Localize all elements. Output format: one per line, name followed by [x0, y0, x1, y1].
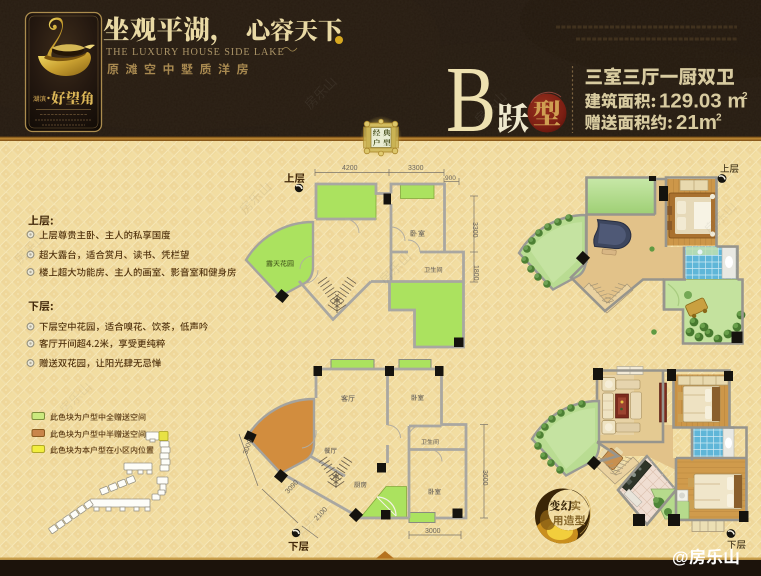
svg-text:3300: 3300 [408, 165, 424, 172]
svg-text:21m: 21m [676, 111, 717, 134]
svg-text:B: B [446, 48, 496, 152]
svg-text:THE LUXURY HOUSE SIDE LAKE: THE LUXURY HOUSE SIDE LAKE [106, 47, 285, 58]
svg-text:1800: 1800 [472, 265, 479, 281]
svg-text:3600: 3600 [481, 470, 488, 486]
svg-text:2: 2 [742, 91, 748, 102]
svg-text:2: 2 [716, 113, 722, 124]
svg-text:@: @ [672, 548, 689, 567]
svg-text:3000: 3000 [425, 528, 441, 535]
svg-text:900: 900 [445, 175, 456, 182]
svg-text:129.03 m: 129.03 m [659, 90, 746, 113]
svg-text:4200: 4200 [342, 165, 358, 172]
svg-text:3300: 3300 [471, 222, 478, 238]
